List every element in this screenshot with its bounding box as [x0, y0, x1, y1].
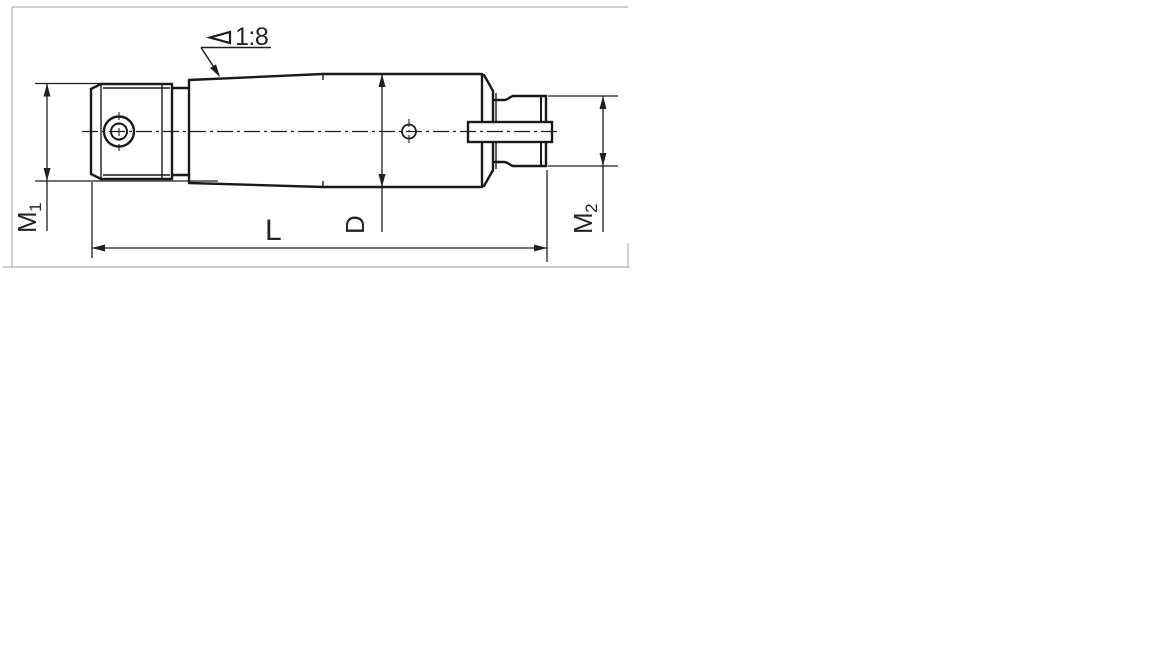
- m1-label: M1: [12, 203, 45, 233]
- length-label: L: [265, 214, 281, 247]
- drawing-canvas: M1 D M2 L 1:8: [0, 0, 1152, 648]
- taper-triangle-icon: [210, 32, 230, 43]
- technical-drawing: M1 D M2 L 1:8: [0, 0, 1152, 648]
- taper-section: [189, 74, 323, 187]
- diameter-label: D: [340, 216, 370, 234]
- m2-dimension: M2: [548, 96, 618, 234]
- length-dimension: L: [92, 170, 547, 262]
- m1-dimension: M1: [12, 84, 218, 234]
- diameter-dimension: D: [340, 74, 386, 234]
- taper-note: 1:8: [201, 23, 271, 77]
- m2-label: M2: [568, 204, 601, 234]
